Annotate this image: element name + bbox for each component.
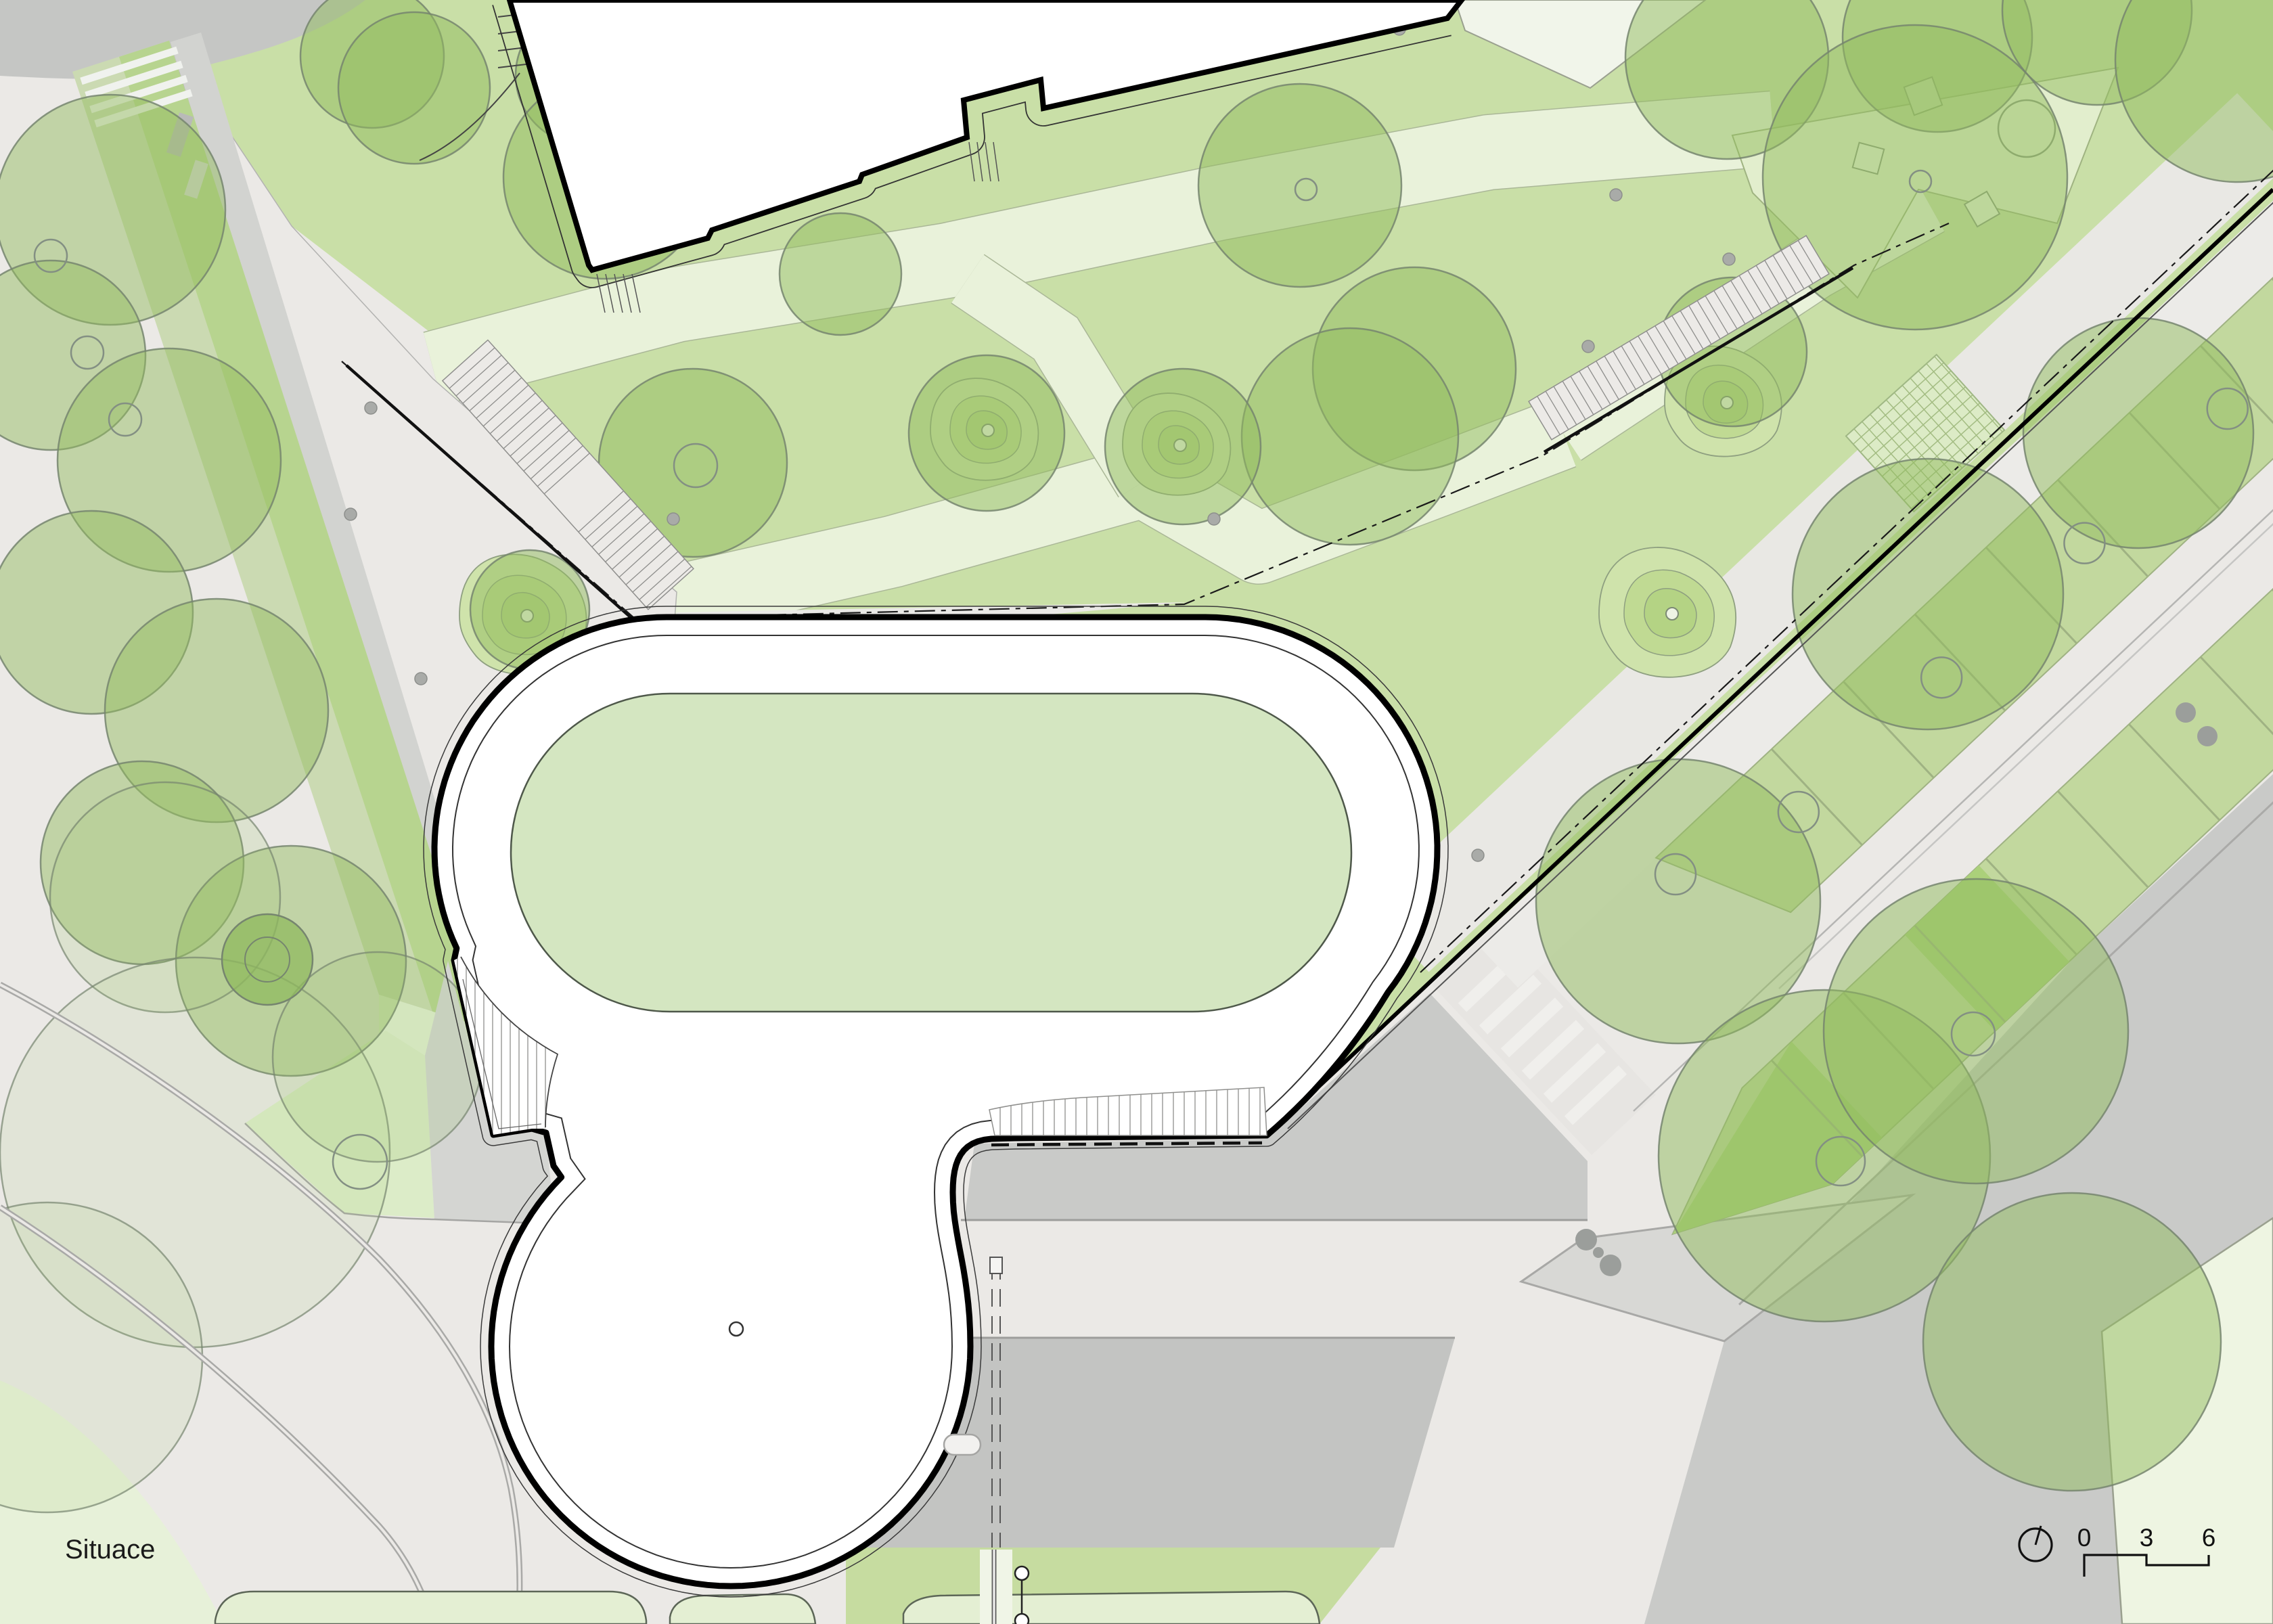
svg-text:6: 6 bbox=[2202, 1524, 2216, 1552]
svg-text:0: 0 bbox=[2077, 1524, 2092, 1552]
svg-text:Situace: Situace bbox=[65, 1535, 155, 1564]
svg-text:3: 3 bbox=[2140, 1524, 2154, 1552]
